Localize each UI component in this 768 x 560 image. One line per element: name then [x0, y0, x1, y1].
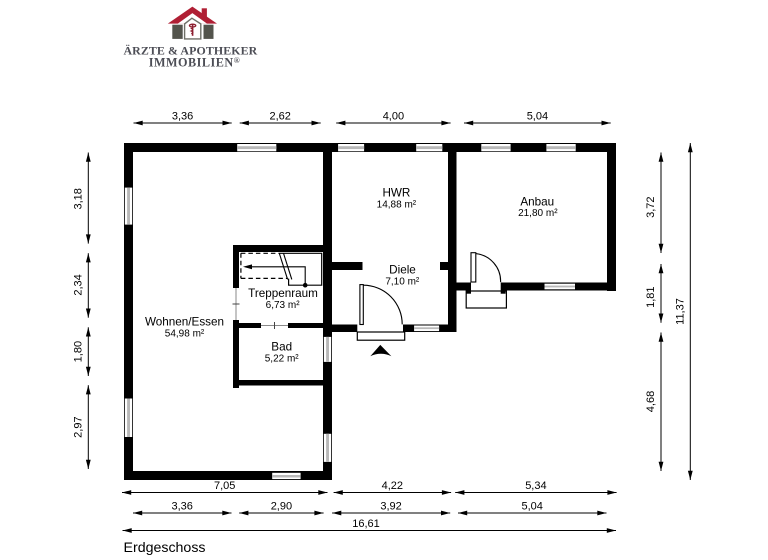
- svg-text:5,22 m²: 5,22 m²: [265, 354, 300, 365]
- svg-text:3,92: 3,92: [380, 501, 401, 513]
- svg-text:7,05: 7,05: [214, 480, 235, 492]
- svg-text:5,04: 5,04: [521, 501, 542, 513]
- svg-text:Erdgeschoss: Erdgeschoss: [124, 540, 206, 556]
- svg-text:2,97: 2,97: [73, 416, 85, 437]
- svg-text:3,72: 3,72: [645, 196, 657, 217]
- svg-text:3,36: 3,36: [172, 111, 193, 123]
- svg-text:Diele: Diele: [389, 263, 416, 276]
- svg-text:21,80 m²: 21,80 m²: [518, 208, 558, 219]
- svg-text:IMMOBILIEN®: IMMOBILIEN®: [149, 55, 240, 69]
- svg-text:HWR: HWR: [382, 187, 410, 200]
- svg-text:6,73 m²: 6,73 m²: [266, 300, 301, 311]
- svg-text:4,68: 4,68: [645, 391, 657, 412]
- svg-text:7,10 m²: 7,10 m²: [385, 276, 420, 287]
- svg-text:1,81: 1,81: [645, 286, 657, 307]
- svg-text:14,88 m²: 14,88 m²: [377, 200, 417, 211]
- svg-text:2,34: 2,34: [73, 274, 85, 295]
- svg-text:Wohnen/Essen: Wohnen/Essen: [145, 316, 224, 329]
- svg-text:5,04: 5,04: [527, 111, 548, 123]
- svg-text:3,18: 3,18: [73, 188, 85, 209]
- svg-text:4,00: 4,00: [383, 111, 404, 123]
- svg-text:54,98 m²: 54,98 m²: [165, 328, 205, 339]
- svg-text:16,61: 16,61: [352, 518, 380, 530]
- svg-text:Anbau: Anbau: [520, 196, 554, 209]
- svg-text:Bad: Bad: [271, 341, 292, 354]
- svg-text:2,62: 2,62: [269, 111, 290, 123]
- svg-text:4,22: 4,22: [382, 480, 403, 492]
- svg-text:3,36: 3,36: [171, 501, 192, 513]
- svg-text:11,37: 11,37: [675, 298, 687, 325]
- svg-text:5,34: 5,34: [525, 480, 546, 492]
- svg-text:2,90: 2,90: [271, 501, 292, 513]
- svg-text:Treppenraum: Treppenraum: [248, 287, 318, 300]
- svg-text:1,80: 1,80: [73, 341, 85, 362]
